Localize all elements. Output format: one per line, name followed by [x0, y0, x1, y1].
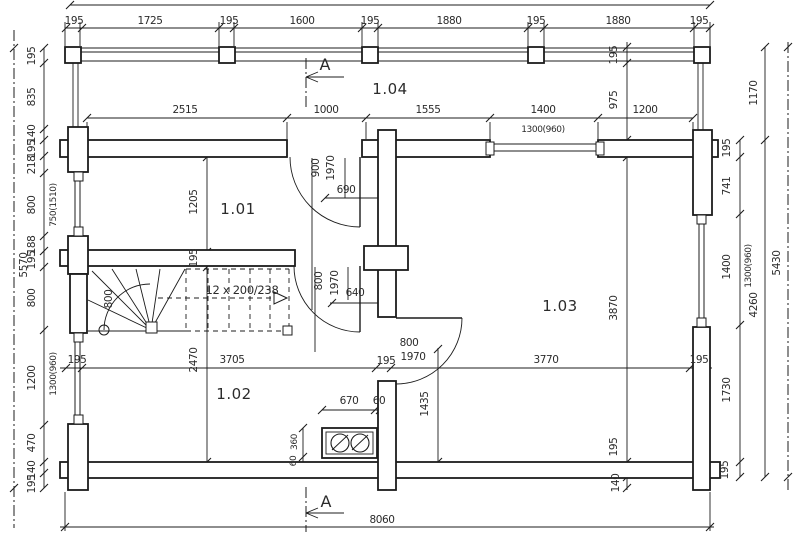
wall-segment: [362, 47, 378, 63]
wall-segment: [70, 274, 87, 333]
walls: [60, 47, 720, 490]
walkline-radius-label: 800: [103, 290, 115, 309]
jamb-block: [283, 326, 292, 335]
jamb-block: [74, 415, 83, 424]
dim-label: 3770: [533, 354, 558, 366]
dim-label: 60: [289, 455, 299, 466]
dim-label: 195: [65, 15, 84, 27]
dim-label: 4260: [748, 292, 760, 317]
jamb-block: [697, 215, 706, 224]
dim-label: 640: [346, 287, 365, 299]
wall-segment: [68, 236, 88, 274]
dim-label: 3870: [608, 295, 620, 320]
construction-line: [306, 72, 318, 77]
dim-label: 140: [610, 474, 622, 493]
floorplan-drawing: 195 1725 195 1600 195 1880 195 1880 195 …: [0, 0, 800, 535]
dim-label: 218: [26, 156, 38, 175]
window-size-label: 1300(960): [521, 125, 565, 135]
dim-label: 1170: [748, 80, 760, 105]
dim-label: 975: [608, 91, 620, 110]
jamb-block: [486, 142, 494, 155]
wall-segment: [65, 47, 81, 63]
dim-label: 1200: [632, 104, 657, 116]
section-marker-bottom: A: [321, 492, 332, 511]
dim-label: 1730: [721, 377, 733, 402]
stair-steps-label: 12 x 200/238: [206, 283, 279, 297]
dim-label: 1200: [26, 365, 38, 390]
construction-line: [306, 77, 318, 82]
dim-label: 195: [68, 354, 87, 366]
room-label-104: 1.04: [372, 80, 407, 98]
wall-segment: [528, 47, 544, 63]
dim-label: 195: [220, 15, 239, 27]
wall-segment: [68, 127, 88, 172]
dim-label: 670: [340, 395, 359, 407]
dim-label: 835: [26, 88, 38, 107]
door-size-label: 900: [310, 159, 322, 178]
dim-label: 360: [290, 433, 300, 450]
dim-label: 195: [527, 15, 546, 27]
construction-line: [306, 508, 318, 513]
dim-label: 800: [26, 289, 38, 308]
dim-label: 1000: [313, 104, 338, 116]
room-label-103: 1.03: [542, 297, 577, 315]
dim-label: 3705: [219, 354, 244, 366]
construction-line: [92, 271, 151, 330]
dim-label: 1880: [436, 15, 461, 27]
dim-label: 741: [721, 177, 733, 196]
section-marker-top: A: [320, 55, 331, 74]
construction-line: [136, 269, 151, 330]
dim-label: 60: [373, 395, 386, 407]
dim-label: 195: [377, 355, 396, 367]
dim-label: 195: [26, 47, 38, 66]
dim-label: 195: [608, 46, 620, 65]
dim-label: 1555: [415, 104, 440, 116]
dim-label: 195: [26, 475, 38, 494]
floorplan-canvas: 195 1725 195 1600 195 1880 195 1880 195 …: [0, 0, 800, 535]
wall-segment: [364, 246, 408, 270]
door-size-label: 1970: [329, 270, 341, 295]
door-size-label: 800: [313, 272, 325, 291]
window-size-label: 1300(960): [744, 244, 754, 288]
dim-label: 195: [188, 249, 200, 268]
door-swing-stair: [294, 266, 360, 332]
dim-label: 690: [337, 184, 356, 196]
dim-label: 1205: [188, 189, 200, 214]
dim-label: 1400: [530, 104, 555, 116]
dim-label: 8060: [369, 514, 394, 526]
jamb-block: [146, 322, 157, 333]
dim-label: 195: [608, 438, 620, 457]
dim-label: 2470: [188, 347, 200, 372]
dim-label: 1880: [605, 15, 630, 27]
dim-label: 470: [26, 434, 38, 453]
dim-label: 195: [690, 15, 709, 27]
jamb-block: [596, 142, 604, 155]
window-size-label: 750(1510): [49, 183, 59, 227]
jamb-block: [74, 172, 83, 181]
dim-label: 195: [690, 354, 709, 366]
dim-label-total: 5430: [771, 250, 783, 275]
wall-segment: [693, 130, 712, 215]
jamb-block: [74, 333, 83, 342]
room-label-101: 1.01: [220, 200, 255, 218]
dim-label: 1435: [419, 391, 431, 416]
dim-label: 1400: [721, 254, 733, 279]
dim-label: 195: [719, 461, 731, 480]
construction-line: [306, 513, 318, 518]
window-size-label: 1300(960): [49, 352, 59, 396]
dim-label: 800: [26, 196, 38, 215]
wall-segment: [219, 47, 235, 63]
room-label-102: 1.02: [216, 385, 251, 403]
jamb-block: [74, 227, 83, 236]
wall-segment: [693, 327, 710, 490]
wall-segment: [68, 424, 88, 490]
construction-line: [151, 269, 185, 330]
door-size-label: 800: [400, 337, 419, 349]
door-size-label: 1970: [325, 155, 337, 180]
dim-label: 2515: [172, 104, 197, 116]
construction-line: [151, 269, 160, 330]
door-size-label: 1970: [400, 351, 425, 363]
dim-label: 195: [721, 139, 733, 158]
wall-segment: [60, 140, 287, 157]
wall-segment: [694, 47, 710, 63]
dim-label-total: 5570: [18, 252, 30, 277]
dim-label: 1725: [137, 15, 162, 27]
dim-label: 1600: [289, 15, 314, 27]
wall-segment: [60, 250, 295, 266]
wall-segment: [378, 130, 396, 317]
jamb-block: [697, 318, 706, 327]
stove: [322, 428, 377, 458]
dim-label: 195: [361, 15, 380, 27]
